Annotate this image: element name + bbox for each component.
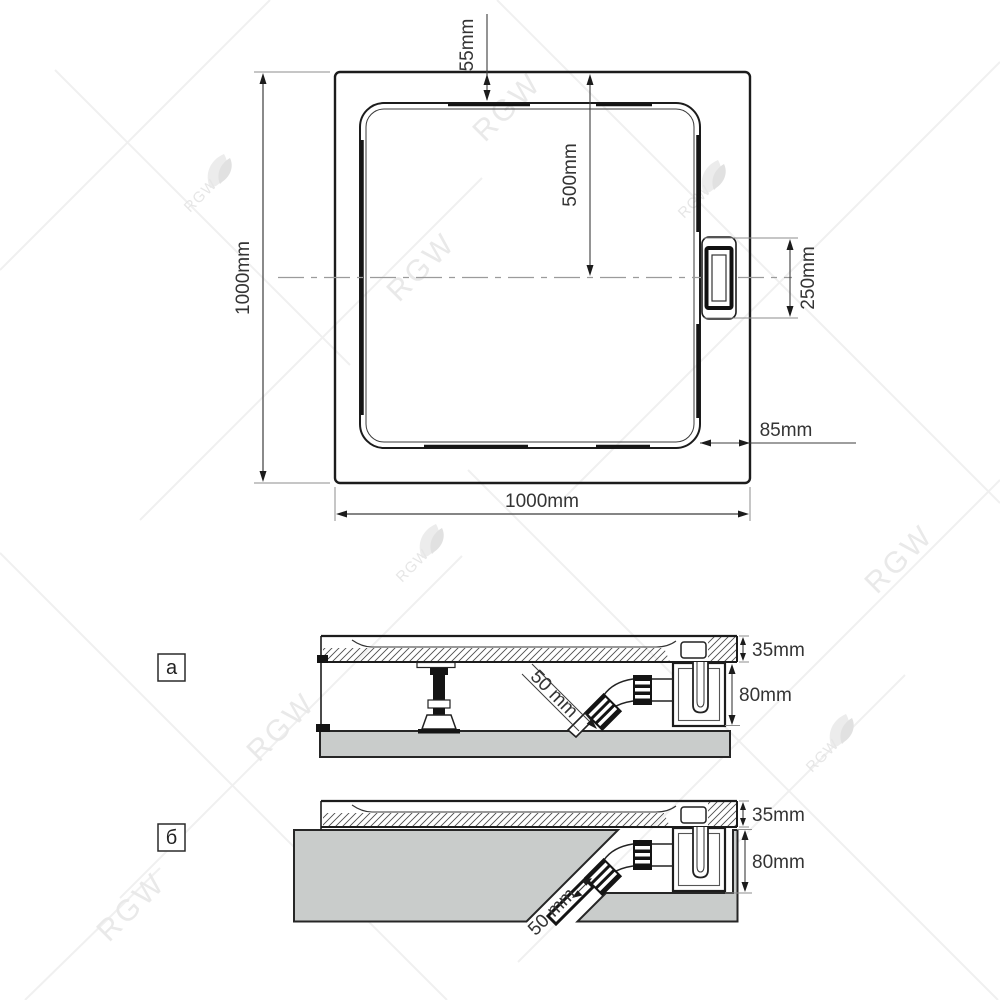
watermark-text: RGW bbox=[241, 687, 323, 769]
dim-label-center: 500mm bbox=[560, 143, 581, 206]
drain-pipe-u bbox=[693, 827, 708, 878]
dim-width-1000: 1000mm bbox=[335, 487, 750, 521]
dim-label-drain: 250mm bbox=[798, 246, 819, 309]
outlet-pipe bbox=[568, 675, 673, 737]
watermark-text: RGW bbox=[393, 546, 433, 586]
watermark-text: RGW bbox=[803, 736, 843, 776]
rim-hatch bbox=[708, 802, 736, 826]
dim-label-pipe-a: 50 mm bbox=[526, 666, 582, 722]
siphon-trap bbox=[673, 827, 725, 891]
rgw-leaf-watermark: RGW bbox=[181, 154, 232, 216]
dim-side-85: 85mm bbox=[700, 420, 856, 447]
watermark-text: RGW bbox=[91, 867, 173, 949]
drawing-svg: RGW RGW RGW RGW RGW RGW RGW RGW RGW bbox=[0, 0, 1000, 1000]
section-a-letter: а bbox=[166, 657, 178, 679]
edge-support bbox=[317, 655, 328, 663]
watermark-text: RGW bbox=[859, 519, 941, 601]
watermark-text: RGW bbox=[675, 182, 715, 222]
watermark-text: RGW bbox=[181, 176, 221, 216]
tray-hatch bbox=[323, 813, 670, 827]
corrugated-elbow bbox=[584, 693, 622, 731]
dim-label-rim-b: 35mm bbox=[752, 805, 805, 826]
section-b-letter: б bbox=[166, 827, 177, 849]
dim-rim-55: 55mm bbox=[457, 14, 491, 101]
dim-label-siphon-b: 80mm bbox=[752, 852, 805, 873]
edge-support-foot bbox=[316, 724, 330, 732]
shower-tray-technical-drawing: RGW RGW RGW RGW RGW RGW RGW RGW RGW bbox=[0, 0, 1000, 1000]
dim-label-rim-top: 55mm bbox=[457, 19, 478, 72]
dim-label-side: 85mm bbox=[760, 420, 813, 441]
dim-center-500: 500mm bbox=[560, 74, 594, 276]
section-a-label: а bbox=[158, 654, 185, 681]
rgw-leaf-watermark: RGW bbox=[803, 714, 854, 776]
rim-cavity bbox=[681, 642, 706, 658]
rim-cavity bbox=[681, 807, 706, 823]
rim-hatch bbox=[708, 637, 736, 661]
watermark-text: RGW bbox=[467, 67, 549, 149]
tray-hatch bbox=[323, 648, 670, 662]
adjustable-foot bbox=[417, 663, 460, 734]
drain-outline bbox=[702, 237, 736, 319]
rgw-leaf-watermark: RGW bbox=[393, 524, 444, 586]
dim-siphon-80-a: 80mm bbox=[725, 664, 792, 726]
dim-label-siphon-a: 80mm bbox=[739, 685, 792, 706]
floor-slab bbox=[320, 731, 730, 757]
dim-label-width: 1000mm bbox=[505, 491, 579, 512]
dim-rim-35-b: 35mm bbox=[739, 801, 805, 827]
section-b-label: б bbox=[158, 824, 185, 851]
section-b: б bbox=[158, 801, 805, 940]
drain-pipe-u bbox=[693, 662, 708, 713]
dim-label-height: 1000mm bbox=[233, 241, 254, 315]
dim-label-rim-a: 35mm bbox=[752, 640, 805, 661]
dim-rim-35-a: 35mm bbox=[739, 636, 805, 662]
siphon-trap bbox=[673, 662, 725, 726]
